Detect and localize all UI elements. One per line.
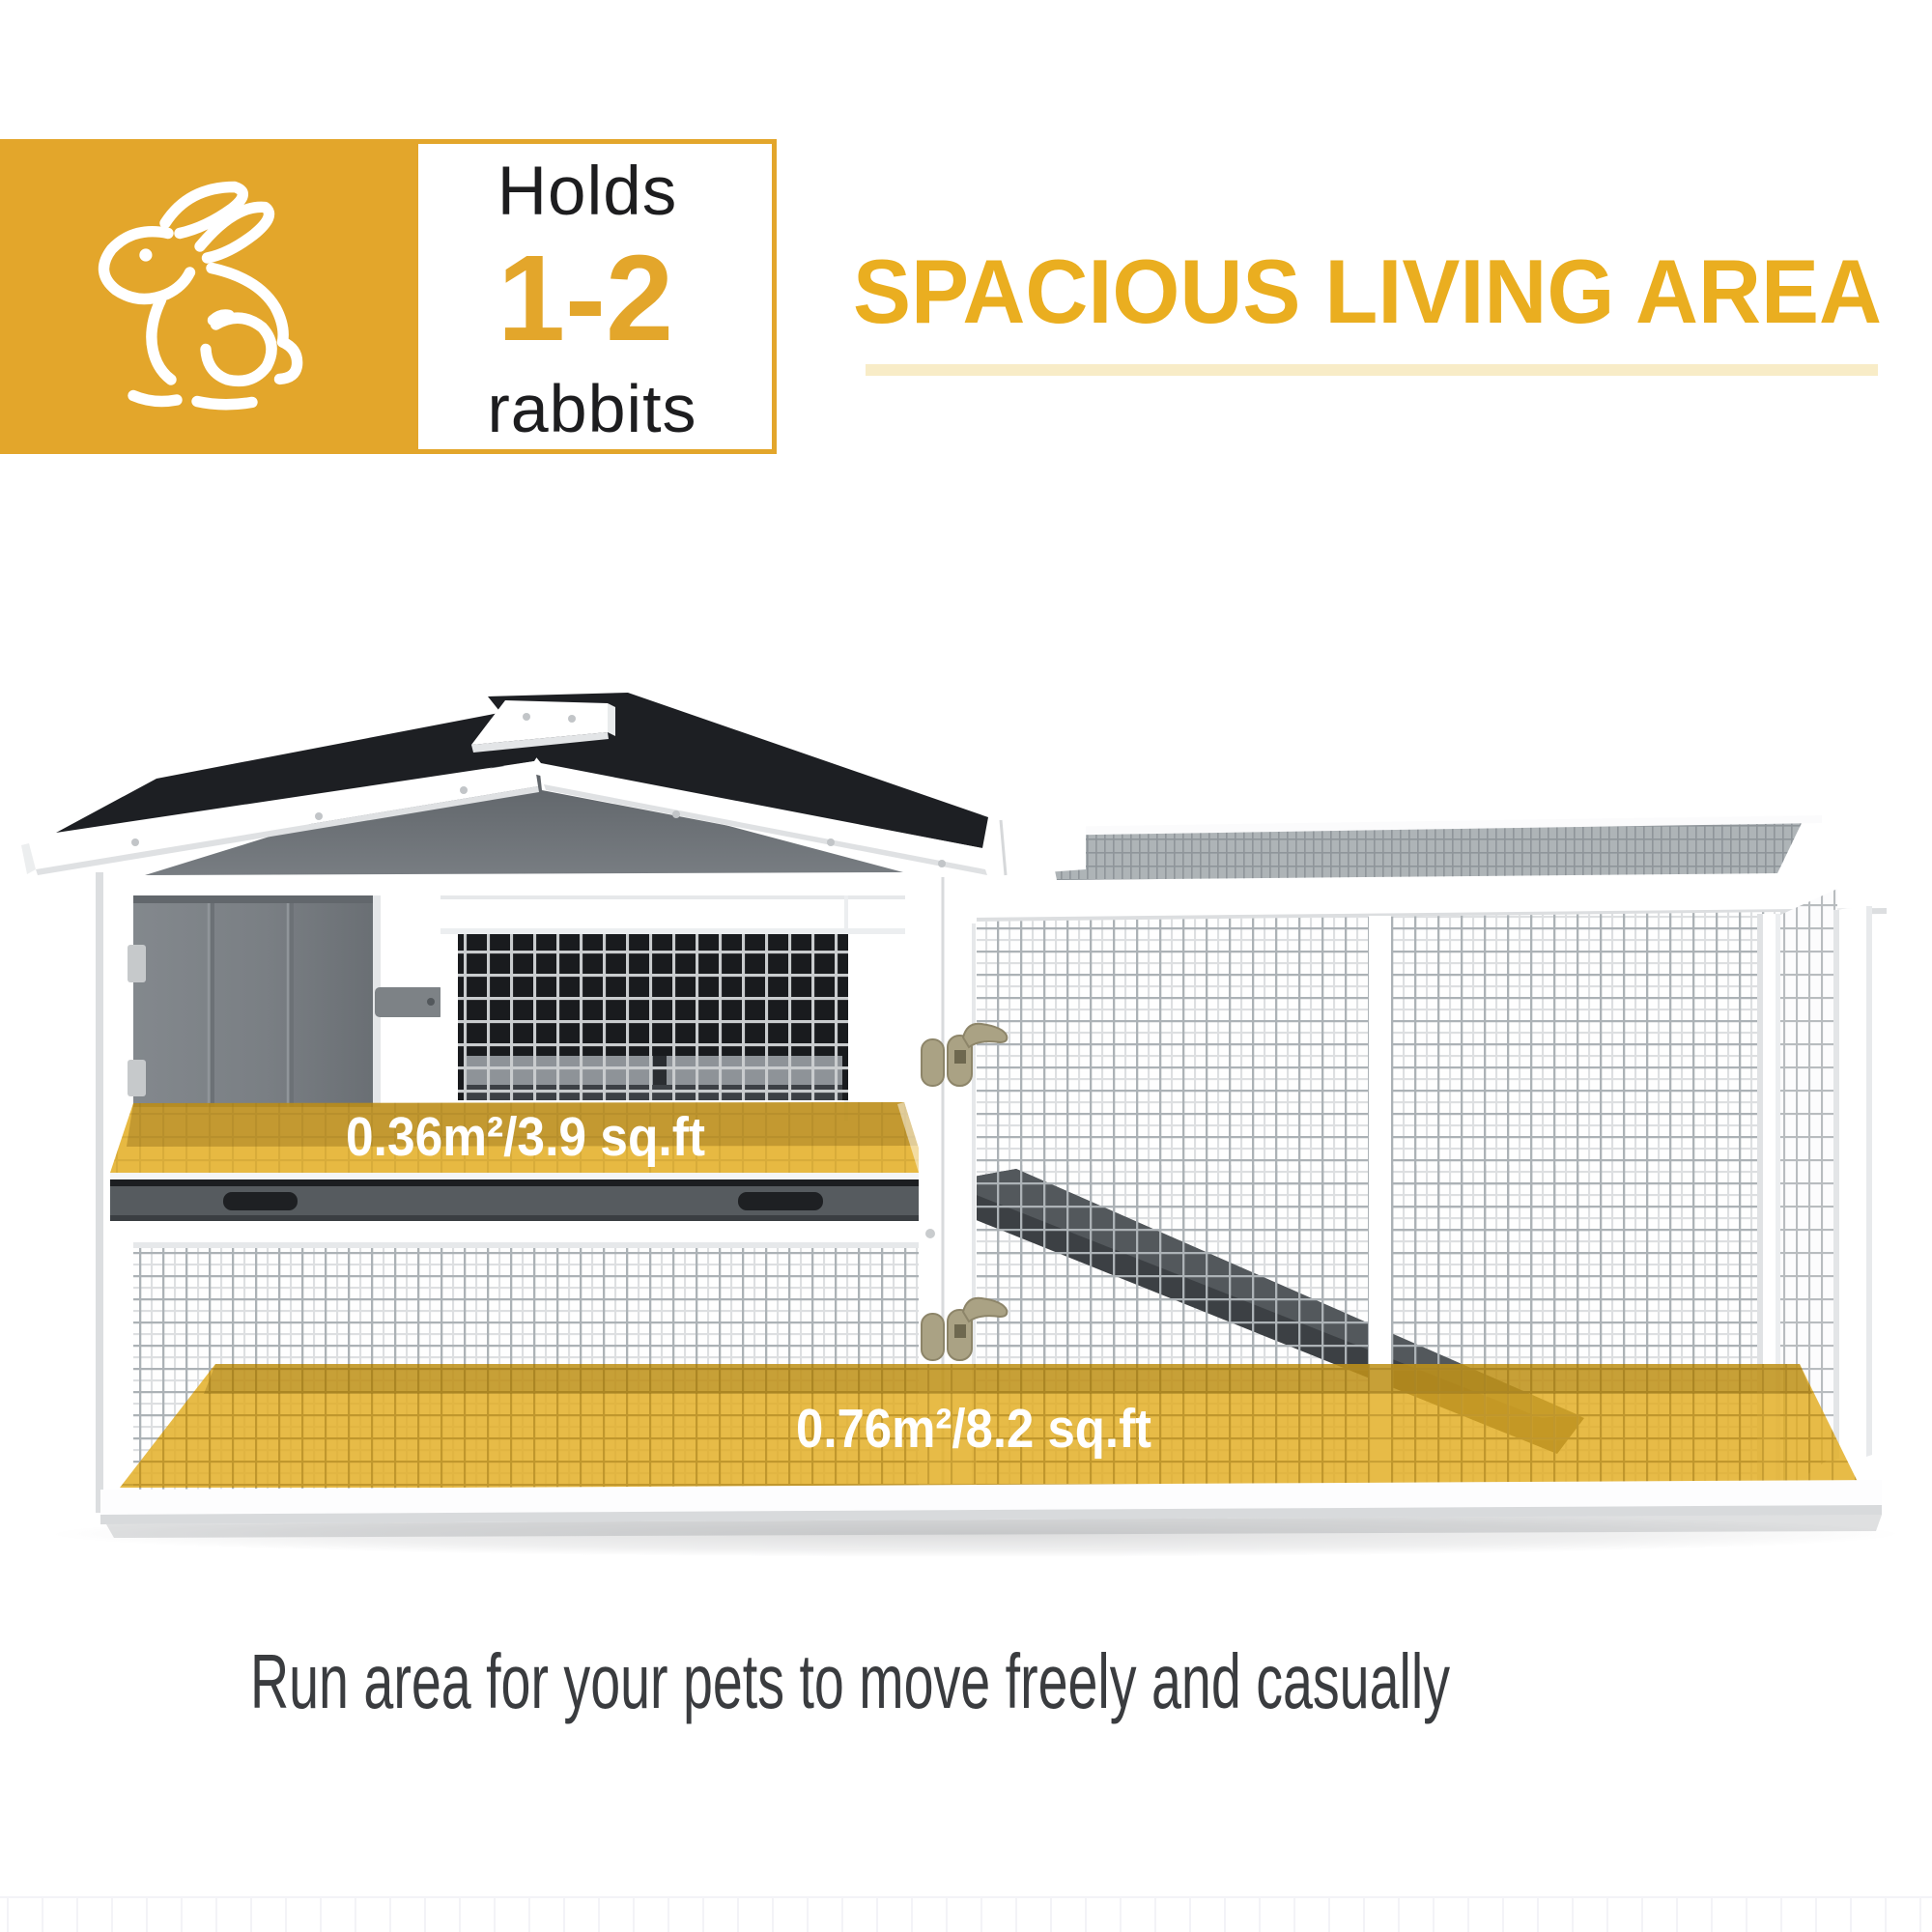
svg-text:rabbits: rabbits — [487, 371, 696, 446]
svg-text:0.36m²/3.9 sq.ft: 0.36m²/3.9 sq.ft — [346, 1106, 705, 1168]
svg-text:Holds: Holds — [497, 154, 678, 230]
svg-text:0.76m²/8.2 sq.ft: 0.76m²/8.2 sq.ft — [796, 1398, 1151, 1460]
svg-text:Run area for your pets to move: Run area for your pets to move freely an… — [250, 1638, 1450, 1724]
svg-text:1-2: 1-2 — [497, 230, 673, 366]
svg-text:SPACIOUS LIVING AREA: SPACIOUS LIVING AREA — [853, 241, 1882, 342]
